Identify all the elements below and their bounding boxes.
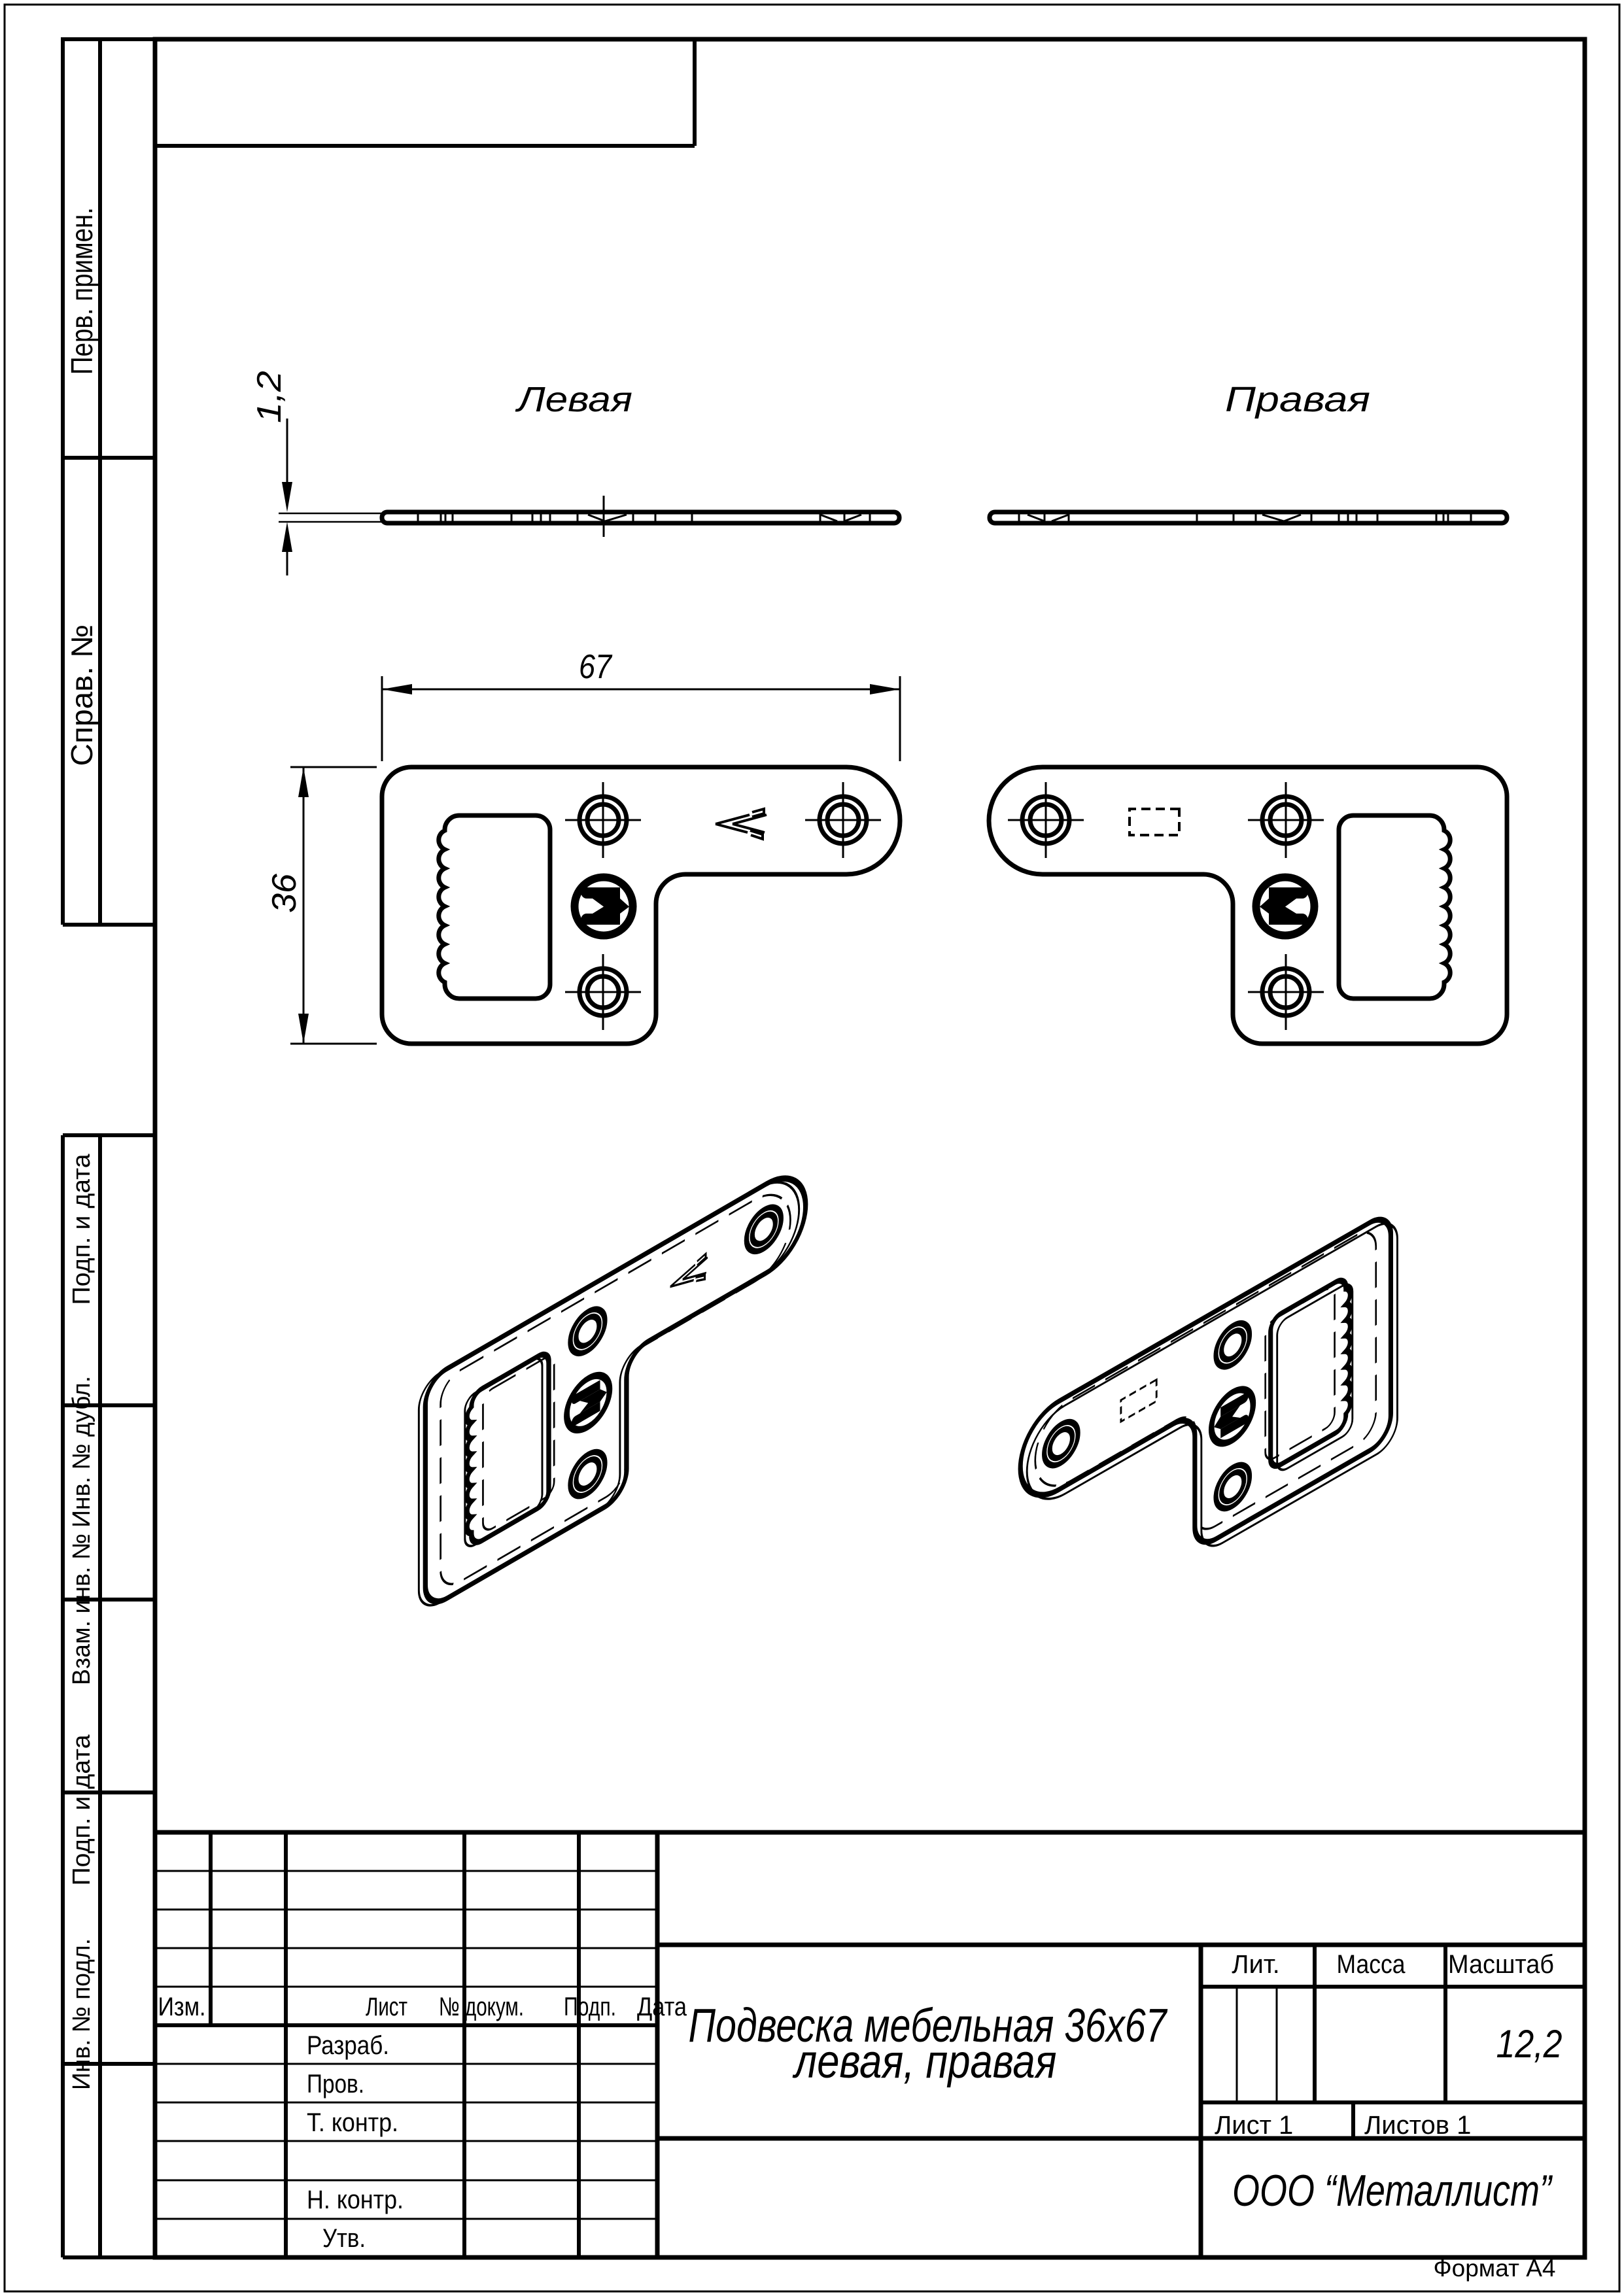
svg-text:Н. контр.: Н. контр. <box>307 2185 404 2214</box>
svg-text:Лист 1: Лист 1 <box>1215 2111 1293 2140</box>
svg-text:Правая: Правая <box>1225 380 1370 419</box>
svg-text:36: 36 <box>266 874 303 913</box>
svg-text:Лист: Лист <box>366 1993 407 2021</box>
svg-text:Инв. № дубл.: Инв. № дубл. <box>68 1376 95 1528</box>
svg-text:Масса: Масса <box>1337 1950 1406 1979</box>
svg-text:Подп. и дата: Подп. и дата <box>68 1154 95 1305</box>
svg-text:Т. контр.: Т. контр. <box>307 2108 398 2137</box>
svg-text:Листов 1: Листов 1 <box>1364 2111 1471 2140</box>
svg-text:Разраб.: Разраб. <box>307 2031 389 2060</box>
svg-text:Перв. примен.: Перв. примен. <box>65 207 99 375</box>
svg-text:Подп. и дата: Подп. и дата <box>68 1734 95 1886</box>
svg-text:Масштаб: Масштаб <box>1448 1950 1554 1979</box>
svg-text:левая, правая: левая, правая <box>792 2036 1056 2088</box>
svg-text:Инв. № подл.: Инв. № подл. <box>68 1938 95 2090</box>
svg-text:Взам. инв. №: Взам. инв. № <box>68 1534 95 1685</box>
svg-text:Подп.: Подп. <box>564 1993 616 2021</box>
svg-text:Дата: Дата <box>637 1993 687 2021</box>
svg-text:Утв.: Утв. <box>322 2224 366 2253</box>
svg-text:Справ. №: Справ. № <box>65 625 99 766</box>
svg-text:Изм.: Изм. <box>158 1993 206 2021</box>
svg-text:Лит.: Лит. <box>1232 1950 1280 1979</box>
svg-text:67: 67 <box>579 648 613 686</box>
svg-text:Пров.: Пров. <box>307 2070 364 2099</box>
svg-text:12,2: 12,2 <box>1496 2022 1563 2066</box>
svg-text:ООО “Металлист”: ООО “Металлист” <box>1232 2166 1553 2216</box>
svg-text:Левая: Левая <box>515 380 632 419</box>
svg-text:№ докум.: № докум. <box>439 1993 524 2021</box>
svg-text:1,2: 1,2 <box>251 371 288 423</box>
svg-text:Формат А4: Формат А4 <box>1434 2255 1556 2282</box>
